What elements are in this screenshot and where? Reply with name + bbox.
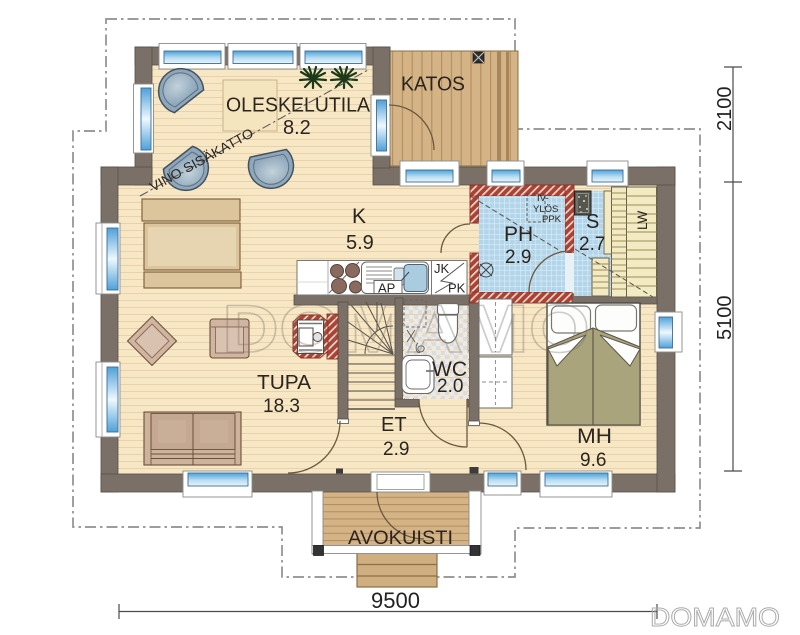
svg-text:DOMAMO: DOMAMO bbox=[222, 291, 590, 367]
svg-text:5.9: 5.9 bbox=[346, 232, 374, 254]
svg-text:MH: MH bbox=[577, 425, 612, 448]
svg-text:K: K bbox=[352, 205, 366, 228]
svg-text:9500: 9500 bbox=[371, 588, 420, 613]
svg-text:DOMAMO: DOMAMO bbox=[650, 602, 780, 632]
svg-text:PH: PH bbox=[504, 223, 533, 246]
svg-text:9.6: 9.6 bbox=[580, 450, 606, 471]
svg-text:LW: LW bbox=[635, 210, 650, 230]
svg-text:TUPA: TUPA bbox=[257, 372, 312, 394]
svg-text:JK: JK bbox=[434, 261, 450, 276]
svg-text:2100: 2100 bbox=[714, 87, 736, 132]
svg-text:5100: 5100 bbox=[714, 296, 736, 341]
svg-text:2.7: 2.7 bbox=[579, 234, 605, 255]
svg-text:AVOKUISTI: AVOKUISTI bbox=[348, 528, 453, 549]
svg-text:2.9: 2.9 bbox=[383, 439, 409, 460]
svg-text:KATOS: KATOS bbox=[401, 74, 465, 96]
svg-text:2.0: 2.0 bbox=[437, 376, 463, 397]
svg-text:IV-: IV- bbox=[537, 193, 549, 204]
svg-text:2.9: 2.9 bbox=[505, 247, 531, 268]
svg-text:ET: ET bbox=[381, 414, 407, 436]
svg-text:18.3: 18.3 bbox=[263, 396, 300, 417]
svg-text:PPK: PPK bbox=[542, 214, 562, 225]
svg-text:S: S bbox=[586, 211, 599, 233]
svg-text:OLESKELUTILA: OLESKELUTILA bbox=[226, 95, 371, 117]
svg-text:8.2: 8.2 bbox=[283, 117, 311, 139]
